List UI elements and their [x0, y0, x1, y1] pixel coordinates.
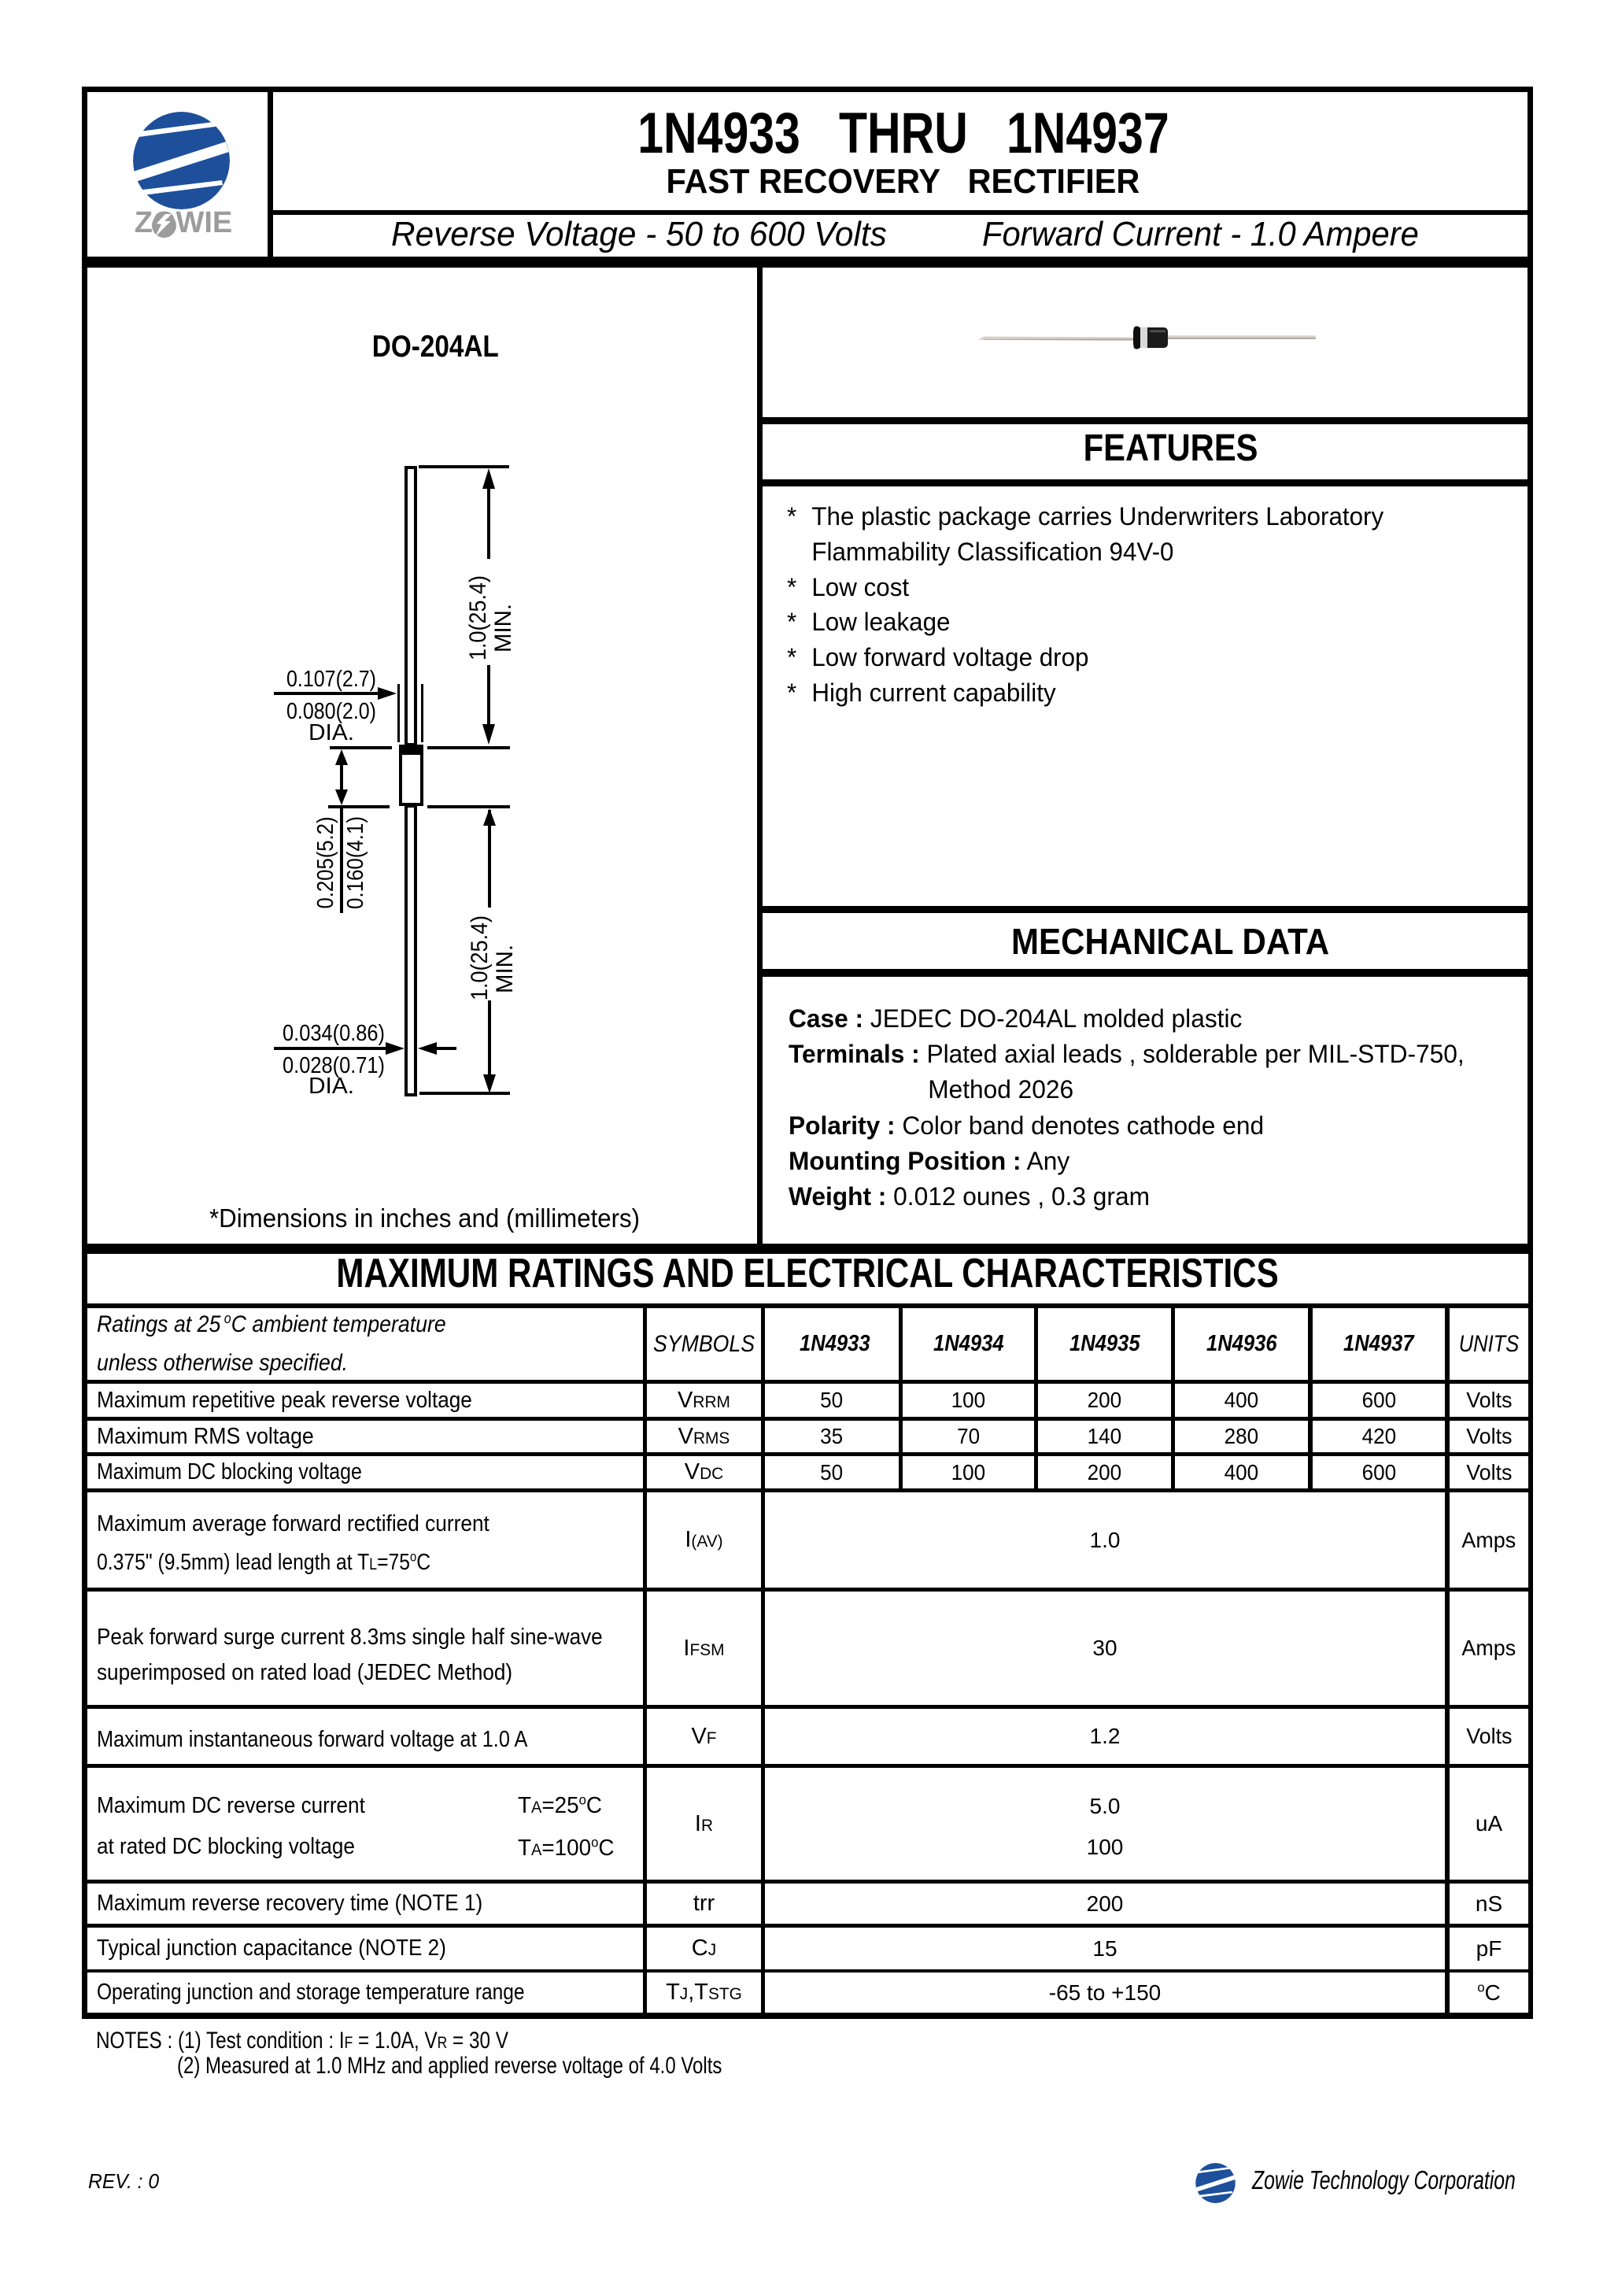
- svg-text:0.205(5.2): 0.205(5.2): [313, 817, 338, 909]
- svg-text:1.0(25.4): 1.0(25.4): [467, 915, 493, 1000]
- svg-text:0.034(0.86): 0.034(0.86): [283, 1021, 385, 1046]
- svg-text:1.0(25.4): 1.0(25.4): [465, 575, 491, 660]
- svg-text:MIN.: MIN.: [492, 945, 518, 993]
- svg-text:DIA.: DIA.: [308, 1074, 354, 1099]
- svg-text:0.160(4.1): 0.160(4.1): [343, 816, 368, 909]
- svg-text:0.107(2.7): 0.107(2.7): [286, 667, 376, 692]
- svg-text:MIN.: MIN.: [490, 604, 516, 653]
- svg-text:DIA.: DIA.: [308, 720, 354, 745]
